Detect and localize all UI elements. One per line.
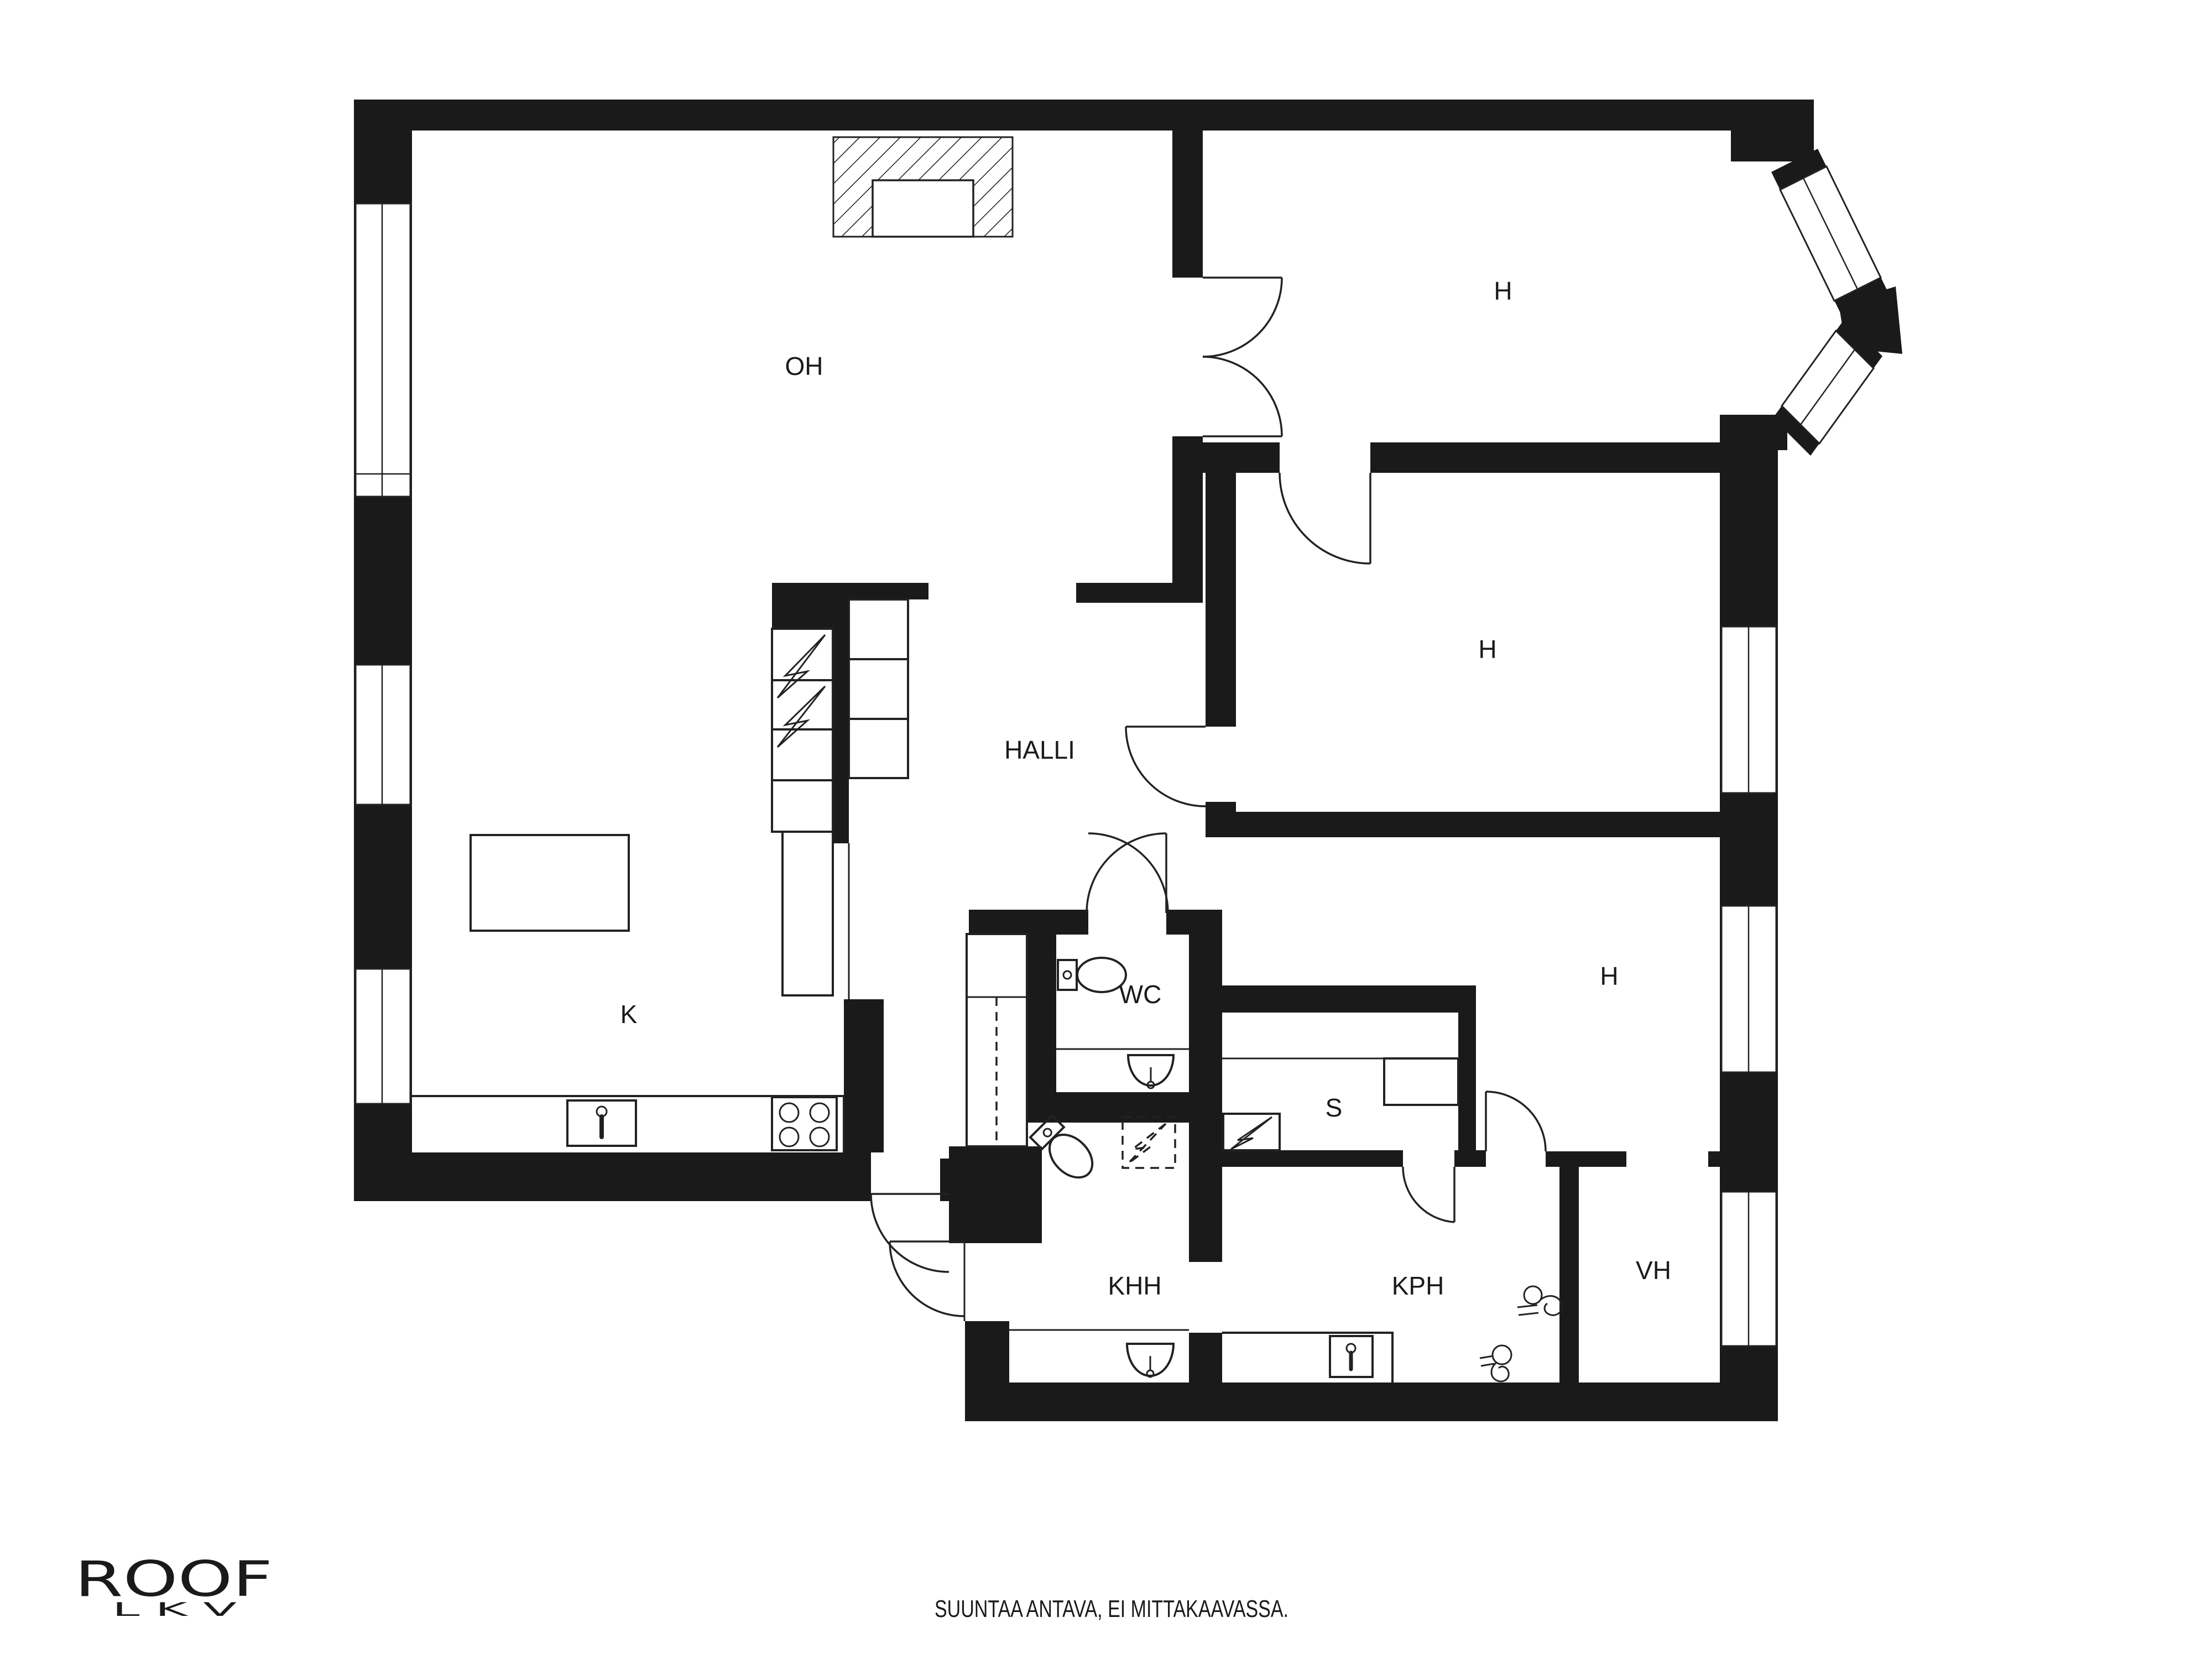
kph-fixtures (1222, 1286, 1562, 1383)
burner-icon (780, 1128, 799, 1146)
shelf-box (772, 729, 833, 780)
lightning-icon (1128, 1124, 1166, 1164)
wall-sauna-right (1458, 1013, 1476, 1167)
kitchen-tall-cabinet (782, 832, 833, 995)
wall-h2-bottom (1206, 812, 1720, 837)
door-khh-arc1 (871, 1194, 949, 1272)
wall-wc-right (1189, 910, 1222, 1262)
branding: ROOF L K V (75, 1551, 273, 1621)
floor-plan-svg: OH H H H HALLI K WC S KHH KPH VH ROOF L … (0, 0, 2212, 1659)
wall-shelf-cap2 (772, 599, 849, 629)
wall-oh-halli (1076, 583, 1203, 603)
shelf-box (849, 719, 908, 778)
room-label-oh: OH (785, 352, 823, 380)
room-label-s: S (1326, 1093, 1343, 1122)
wall-wc-top-left (969, 910, 1088, 935)
kitchen-fixtures (412, 835, 844, 1152)
burner-icon (810, 1103, 829, 1122)
room-label-h-bottom: H (1600, 962, 1618, 990)
wall-hbottom-south-stub (1708, 1151, 1720, 1167)
wall-h1-h2-left (1172, 442, 1280, 473)
burner-icon (810, 1128, 829, 1146)
wall-wc-left (1027, 935, 1056, 1123)
room-label-halli: HALLI (1004, 735, 1075, 764)
wall-kitchen-east (844, 999, 884, 1152)
room-label-h-top: H (1494, 276, 1512, 305)
room-label-vh: VH (1636, 1256, 1671, 1285)
sauna-heater (1223, 1114, 1280, 1150)
fireplace-opening (873, 180, 973, 237)
wall-h1-h2-right (1370, 442, 1720, 473)
room-label-khh: KHH (1108, 1271, 1161, 1300)
window-left-1 (356, 204, 410, 497)
shower-mixer-icon (1480, 1345, 1511, 1381)
logo-lkv: L K V (112, 1599, 237, 1621)
wall-khh-jog (965, 1321, 1009, 1421)
inner-walls (772, 131, 1720, 1421)
shelf-box (772, 780, 833, 832)
wall-kitchen-bottom (354, 1152, 871, 1201)
wall-khh-kph-lower (1189, 1333, 1222, 1383)
wall-sauna-top (1222, 985, 1476, 1013)
burner-icon (780, 1103, 799, 1122)
kitchen-counter (412, 1096, 844, 1152)
wall-shelf-cap (772, 583, 928, 599)
outer-walls (354, 100, 1902, 1421)
wall-hbottom-south (1546, 1151, 1626, 1167)
lightning-icon (1231, 1117, 1272, 1149)
room-label-wc: WC (1119, 980, 1162, 1009)
door-khh-arc2 (890, 1241, 964, 1316)
toilet-icon (1058, 960, 1077, 990)
shower-mixer-icon (1517, 1286, 1562, 1315)
door-halli-h2-arc (1126, 727, 1206, 806)
dining-table (471, 835, 629, 931)
wall-bay-top-corner (1731, 100, 1814, 161)
door-kph-h-arc (1486, 1092, 1546, 1151)
toilet-button (1042, 1127, 1053, 1138)
floor-plan-page: OH H H H HALLI K WC S KHH KPH VH ROOF L … (0, 0, 2212, 1659)
door-oh-h-arc2 (1203, 357, 1282, 436)
toilet-icon (1063, 971, 1071, 979)
lightning-icon (778, 635, 825, 698)
door-wc-arc2 (1088, 833, 1168, 913)
door-h1-h2-arc (1280, 473, 1370, 564)
wall-bay-bottom-corner (1720, 415, 1787, 450)
wall-halli-h2-upper (1206, 473, 1236, 727)
closet (967, 934, 1027, 1146)
wc-fixtures (1056, 958, 1189, 1088)
kph-counter (1222, 1333, 1392, 1383)
fireplace (833, 137, 1013, 237)
footer-note: SUUNTAA ANTAVA, EI MITTAKAAVASSA. (935, 1595, 1288, 1623)
window-left-2 (356, 665, 410, 805)
shelf-box (849, 659, 908, 719)
wall-oh-east-upper (1172, 131, 1203, 278)
lightning-icon (778, 686, 825, 747)
room-label-kph: KPH (1392, 1271, 1444, 1300)
door-sauna-arc (1403, 1167, 1454, 1222)
wall-bottom (965, 1383, 1778, 1421)
wall-sauna-bottom (1222, 1150, 1403, 1167)
shelf-box (849, 599, 908, 659)
sauna-bench (1384, 1058, 1458, 1105)
wall-shelf-spine (833, 629, 849, 843)
wall-sauna-bottom-jamb (1454, 1150, 1486, 1167)
door-wc-arc1 (1087, 833, 1166, 913)
wall-top (354, 100, 1774, 131)
wall-kph-vh (1559, 1167, 1579, 1383)
window-left-3 (356, 969, 410, 1104)
room-label-h-mid: H (1478, 635, 1496, 664)
room-labels: OH H H H HALLI K WC S KHH KPH VH (620, 276, 1671, 1300)
door-oh-h-arc1 (1203, 278, 1282, 357)
room-label-k: K (620, 1000, 638, 1029)
shelving-unit (772, 599, 1027, 1146)
